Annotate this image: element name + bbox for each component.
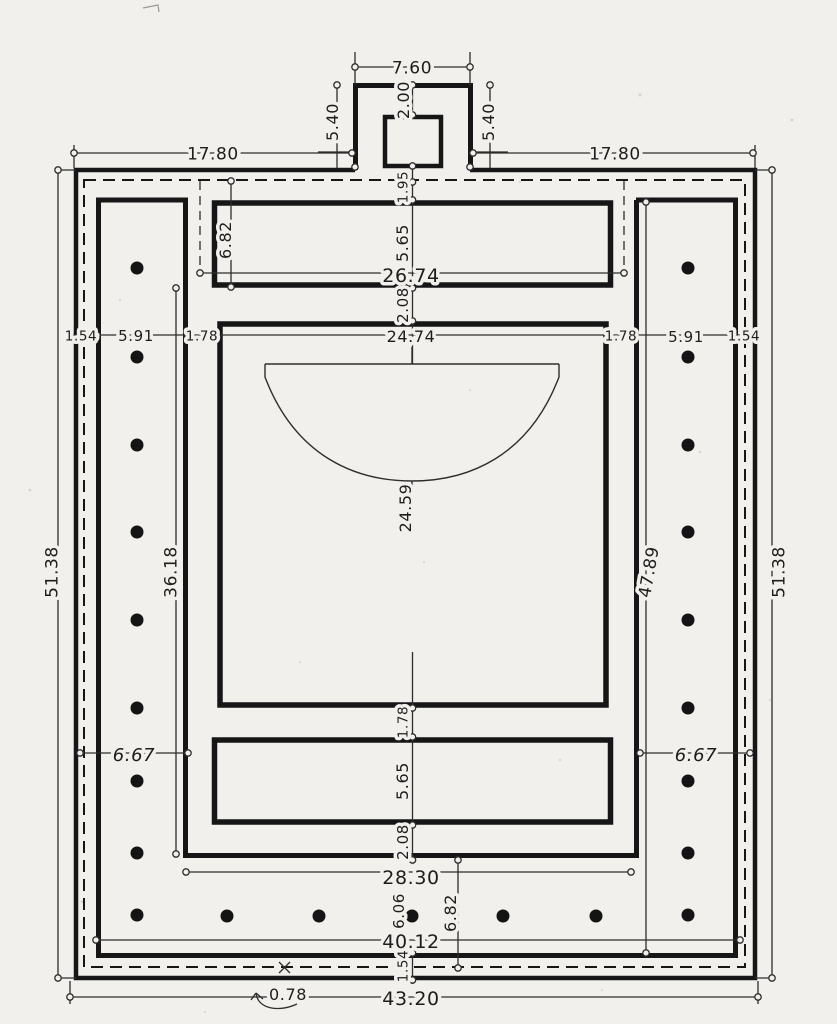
column-dot bbox=[682, 702, 695, 715]
column-dot bbox=[497, 910, 510, 923]
dim-label-front-right: 17.80 bbox=[589, 144, 641, 164]
dim-label-overall-height-left: 51.38 bbox=[42, 546, 62, 598]
walls bbox=[76, 86, 755, 979]
dim-label-step: 0.78 bbox=[269, 985, 307, 1004]
column-dot bbox=[682, 439, 695, 452]
dim-label-outer-wall-left: 1.54 bbox=[65, 328, 97, 344]
dim-label-porch-depth-right: 5.40 bbox=[479, 103, 498, 141]
dim-label-overall-width: 43.20 bbox=[382, 988, 439, 1010]
dim-label-court-length: 36.18 bbox=[161, 546, 181, 598]
dim-label-rear-width: 28.30 bbox=[382, 867, 439, 889]
column-dot bbox=[131, 702, 144, 715]
dim-label-bottom-bay: 6.06 bbox=[390, 893, 408, 929]
column-dot bbox=[682, 775, 695, 788]
dim-label-inner-length: 47.89 bbox=[635, 545, 664, 599]
dim-label-overall-height-right: 51.38 bbox=[769, 546, 789, 598]
column-dot bbox=[682, 526, 695, 539]
column-dot bbox=[131, 909, 144, 922]
dim-label-porch-gap: 2.00 bbox=[394, 81, 413, 119]
dim-label-top-wall-gap: 2.08 bbox=[394, 287, 412, 323]
dim-label-pronaos-width: 26.74 bbox=[382, 265, 439, 287]
column-dot bbox=[131, 439, 144, 452]
dim-label-rear-wall-gap: 2.08 bbox=[394, 824, 412, 860]
column-dot bbox=[131, 526, 144, 539]
dim-label-aisle-right: 5.91 bbox=[668, 328, 704, 346]
dim-label-top-corridor: 6.82 bbox=[216, 221, 235, 259]
dim-label-porch-width: 7.60 bbox=[392, 58, 432, 78]
column-dot bbox=[131, 262, 144, 275]
dim-label-apse-width: 24.59 bbox=[396, 484, 415, 533]
dim-label-pronaos-depth: 5.65 bbox=[393, 224, 412, 262]
column-dot bbox=[682, 909, 695, 922]
temple-plan-sheet: 7.60 2.00 5.40 5.40 17.80 17.80 1.95 6.8… bbox=[0, 0, 837, 1024]
column-dot bbox=[221, 910, 234, 923]
dim-label-front-left: 17.80 bbox=[187, 144, 239, 164]
dim-label-rear-room-depth: 5.65 bbox=[393, 762, 412, 800]
apse-curve bbox=[265, 347, 559, 492]
column-dot bbox=[131, 847, 144, 860]
apse-arc bbox=[265, 364, 559, 481]
column-dot bbox=[313, 910, 326, 923]
dim-label-bottom-outer-wall: 1.54 bbox=[395, 950, 411, 982]
column-dot bbox=[682, 262, 695, 275]
column-dot bbox=[682, 847, 695, 860]
dim-label-aisle-left: 5.91 bbox=[118, 327, 154, 345]
dim-label-bottom-wall-gap: 1.78 bbox=[395, 706, 411, 738]
dim-label-corridor-left: 6.67 bbox=[113, 745, 155, 766]
column-dot bbox=[682, 614, 695, 627]
dim-label-wall-gap-right: 1.78 bbox=[605, 328, 637, 344]
temple-plan-drawing: 7.60 2.00 5.40 5.40 17.80 17.80 1.95 6.8… bbox=[0, 0, 837, 1024]
dim-label-corridor-right: 6.67 bbox=[675, 745, 717, 766]
dim-label-wall-gap-left: 1.78 bbox=[186, 328, 218, 344]
column-dot bbox=[131, 614, 144, 627]
porch-inner-square bbox=[385, 117, 441, 166]
column-dot bbox=[590, 910, 603, 923]
dim-label-outer-wall-right: 1.54 bbox=[728, 328, 760, 344]
column-dot bbox=[131, 775, 144, 788]
column-dot bbox=[131, 351, 144, 364]
dim-label-naos-width: 24.74 bbox=[387, 327, 436, 346]
dim-label-top-setback: 1.95 bbox=[395, 171, 411, 203]
paper-mark bbox=[143, 5, 159, 12]
column-dot bbox=[682, 351, 695, 364]
dim-label-porch-depth-left: 5.40 bbox=[323, 103, 342, 141]
dim-label-bottom-corridor: 6.82 bbox=[441, 894, 460, 932]
